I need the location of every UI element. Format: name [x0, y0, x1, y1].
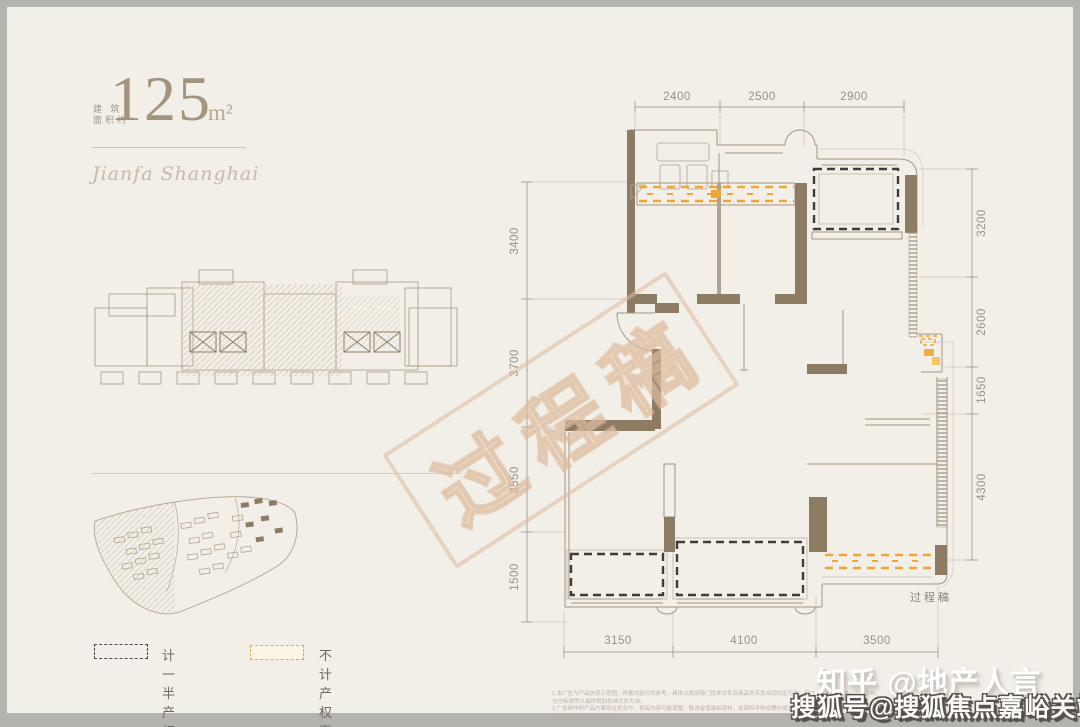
dim-top-3: 2900: [840, 91, 868, 103]
dim-left-2: 3700: [509, 349, 521, 377]
dim-bottom-1: 3150: [604, 635, 632, 647]
plan-draft-note: 过程稿: [910, 590, 952, 604]
poster-canvas: 建 筑面积约 125 m² Jianfa Shanghai: [0, 0, 1080, 727]
poster-page: 建 筑面积约 125 m² Jianfa Shanghai: [7, 7, 1073, 713]
keyplan-highlight-hatch-2: [342, 296, 400, 348]
legend-half-area-label: 计一半产权面积: [162, 645, 176, 727]
divider-bottom: [92, 473, 462, 474]
dimension-left: 3400 3700 3550 1500: [509, 182, 533, 622]
legend-half-area-swatch: [94, 644, 148, 659]
area-value: 125: [110, 69, 212, 129]
siteplan-drawing: [87, 483, 332, 633]
dimension-top: 2400 2500 2900: [635, 91, 904, 113]
entry-door-arc: [617, 313, 655, 351]
dim-bottom-3: 3500: [863, 635, 891, 647]
legend-excluded-area-swatch: [250, 645, 304, 660]
structural-walls: [565, 130, 947, 575]
dim-right-2: 2600: [976, 308, 988, 336]
dimension-right: 3200 2600 1650 4300: [966, 169, 988, 560]
divider-top: [92, 147, 246, 148]
siteplan-dividers: [167, 498, 239, 591]
dim-top-1: 2400: [663, 91, 691, 103]
dim-right-3: 1650: [976, 376, 988, 404]
floorplan-drawing: 2400 2500 2900 3400 3700 3550 1500: [507, 87, 1007, 672]
siteplan-highlighted-buildings: [240, 496, 284, 544]
dim-left-4: 1500: [509, 563, 521, 591]
dim-right-1: 3200: [976, 209, 988, 237]
area-unit: m²: [208, 100, 233, 126]
keyplan-highlight-hatch: [182, 284, 342, 376]
excluded-areas: [639, 187, 940, 568]
half-property-areas: [571, 169, 898, 595]
dim-left-1: 3400: [509, 227, 521, 255]
dim-left-3: 3550: [509, 466, 521, 494]
half-property-inner-line: [819, 174, 893, 224]
sohu-watermark: 搜狐号@搜狐焦点嘉峪关站: [791, 688, 1080, 724]
building-keyplan-drawing: [87, 260, 465, 402]
dim-right-4: 4300: [976, 473, 988, 501]
hatch-strips: [909, 232, 947, 527]
dim-top-2: 2500: [748, 91, 776, 103]
brand-script-text: Jianfa Shanghai: [92, 163, 259, 185]
dimension-bottom: 3150 4100 3500: [564, 635, 938, 658]
legend-excluded-area-label: 不计产权面积: [319, 645, 333, 727]
dim-bottom-2: 4100: [730, 635, 758, 647]
